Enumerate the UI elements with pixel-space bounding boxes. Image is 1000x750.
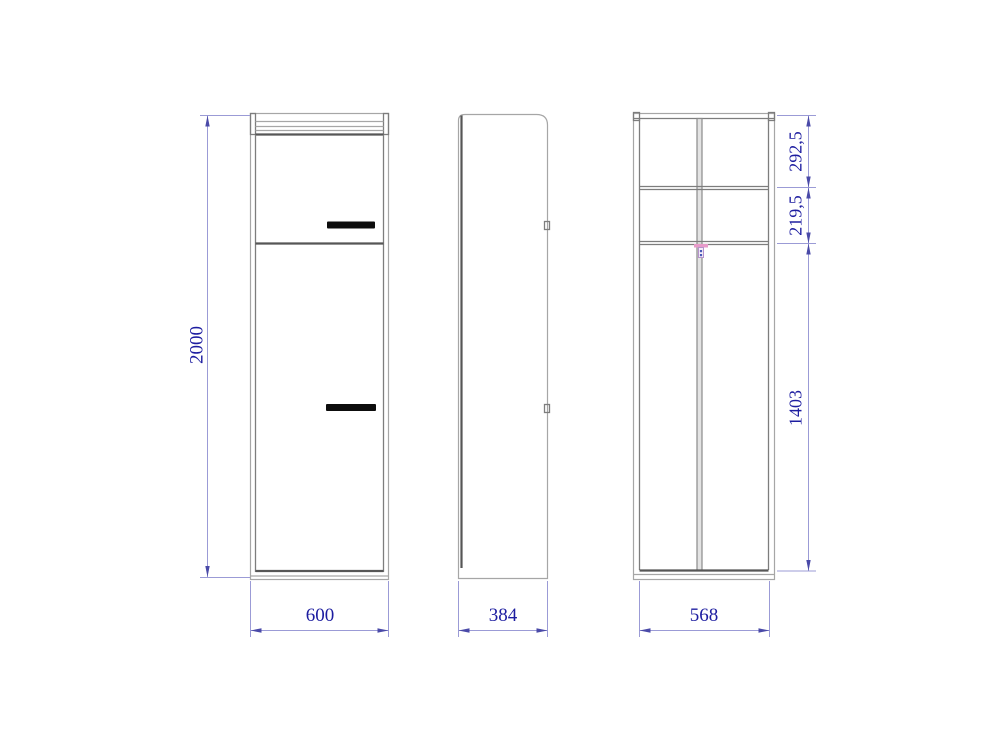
dimension-interior-width: 568	[640, 581, 770, 637]
dim-label-front-width: 600	[306, 605, 335, 626]
lower-door-handle	[326, 404, 376, 411]
arrow-down-icon	[806, 177, 810, 188]
dim-label-height: 2000	[187, 326, 208, 364]
dimension-depth: 384	[459, 581, 548, 637]
technical-drawing: 2000 600 384 568	[0, 0, 1000, 750]
arrow-up-icon	[806, 116, 810, 127]
dim-label-interior-width: 568	[690, 605, 719, 626]
arrow-up-icon	[806, 244, 810, 255]
rail-screw-2	[700, 254, 702, 256]
dim-label-middle-section: 219,5	[786, 195, 806, 236]
upper-door-handle	[327, 222, 375, 229]
rail-screw-1	[700, 250, 702, 252]
front-outline	[251, 114, 389, 580]
interior-outline	[634, 114, 775, 580]
arrow-right-icon	[537, 628, 548, 632]
arrow-down-icon	[806, 233, 810, 244]
side-outline	[459, 115, 548, 579]
dimension-height: 2000	[187, 116, 251, 578]
front-top-right-post	[384, 114, 389, 135]
dimension-front-width: 600	[251, 581, 389, 637]
hanger-rail-bracket	[694, 244, 708, 248]
dim-label-bottom-section: 1403	[786, 390, 806, 426]
front-top-left-post	[251, 114, 256, 135]
arrow-up-icon	[205, 116, 209, 127]
arrow-right-icon	[378, 628, 389, 632]
arrow-right-icon	[759, 628, 770, 632]
arrow-left-icon	[251, 628, 262, 632]
side-view	[459, 115, 550, 579]
interior-view	[634, 113, 775, 580]
arrow-left-icon	[640, 628, 651, 632]
dim-label-depth: 384	[489, 605, 518, 626]
dim-label-top-section: 292,5	[786, 131, 806, 172]
arrow-down-icon	[205, 566, 209, 577]
drawing-canvas: 2000 600 384 568	[0, 0, 1000, 750]
arrow-up-icon	[806, 188, 810, 199]
arrow-left-icon	[459, 628, 470, 632]
front-view	[251, 114, 389, 580]
arrow-down-icon	[806, 560, 810, 571]
dimension-interior-sections: 292,5 219,5 1403	[777, 116, 816, 572]
